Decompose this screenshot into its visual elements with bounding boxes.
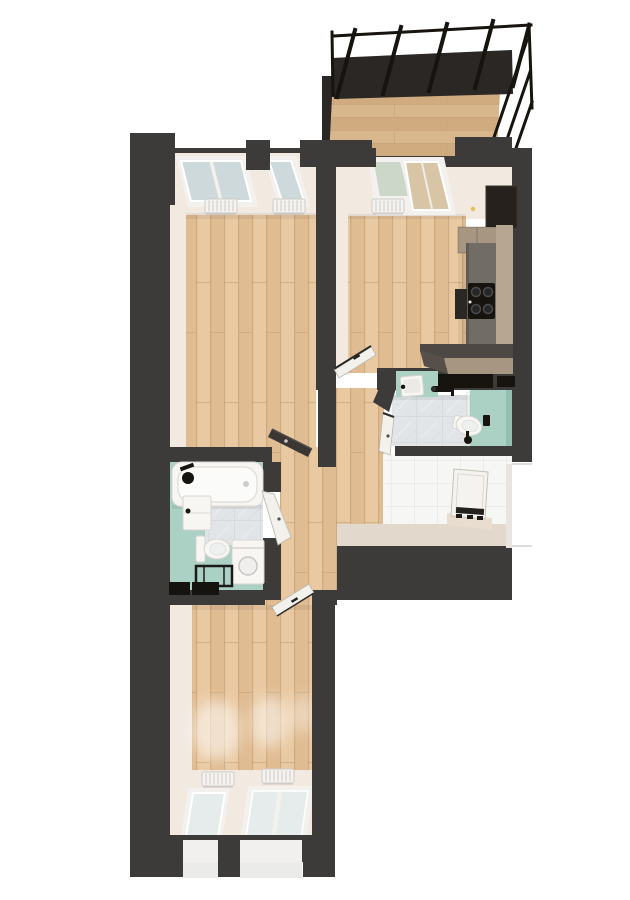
hallway-floor xyxy=(280,465,338,590)
basin-faucet-icon xyxy=(186,509,191,514)
bedroom-window-reveal-1 xyxy=(183,840,218,862)
hinge-icon xyxy=(477,516,483,520)
living-room-floor xyxy=(186,215,316,447)
bedroom-window-double xyxy=(240,786,314,843)
entry-south-wall-mass xyxy=(337,546,512,600)
kitchen-left-wall-face xyxy=(336,219,350,375)
floor-plan-render xyxy=(0,0,630,900)
hinge-icon xyxy=(456,514,462,518)
living-room-radiator-1 xyxy=(205,199,237,215)
bedroom-radiator-1 xyxy=(202,772,234,788)
bedroom-outer-sill-2 xyxy=(240,862,302,878)
bedroom-window-reveal-2 xyxy=(240,840,302,862)
door-handle-icon xyxy=(277,517,280,520)
basin-cabinet xyxy=(183,496,211,530)
tall-cabinet xyxy=(486,186,517,228)
window-mullion-pillar xyxy=(246,140,270,170)
bedroom-outer-sill-1 xyxy=(183,862,218,878)
bottom-center-pillar xyxy=(218,835,240,877)
bedroom-radiator-2 xyxy=(262,769,294,785)
switch-icon xyxy=(471,207,475,211)
bathroom-right-wall-upper xyxy=(263,462,281,492)
entrance-door xyxy=(447,469,492,530)
flush-plate-icon xyxy=(483,415,490,426)
right-exterior-wall xyxy=(512,148,532,373)
bath-mat-1 xyxy=(169,582,190,595)
shower-mixer-icon xyxy=(182,472,194,484)
oven-icon xyxy=(455,289,467,319)
hinge-icon xyxy=(467,515,473,519)
wc-black-shelf-short xyxy=(497,376,515,387)
wc-black-shelf-long xyxy=(438,374,493,388)
washing-machine xyxy=(232,540,264,584)
door-handle-icon xyxy=(284,439,288,443)
wc-basin xyxy=(400,375,424,397)
floor-plan-canvas xyxy=(0,0,630,900)
entrance-opening xyxy=(512,462,532,548)
living-room-radiator-2 xyxy=(273,199,305,215)
bedroom-right-wall xyxy=(312,600,335,862)
divider-wall-lower xyxy=(318,390,336,467)
living-room-south-wall xyxy=(160,447,272,462)
living-room-left-wall-face xyxy=(170,215,188,447)
top-right-pillar xyxy=(455,137,512,167)
base-cabinet-band xyxy=(496,225,513,360)
bedroom-window-single xyxy=(180,788,230,842)
pergola-shade-band xyxy=(331,50,513,99)
bottom-left-corner-pillar xyxy=(130,835,183,877)
top-left-corner-pillar xyxy=(130,133,175,205)
bath-mat-2 xyxy=(192,582,219,595)
wc-south-wall xyxy=(395,446,513,456)
cooktop-icon xyxy=(468,283,495,319)
entrance-jamb xyxy=(506,464,512,548)
bathroom-right-wall-lower xyxy=(263,538,281,600)
kitchen-top-wall xyxy=(336,148,376,167)
door-handle-icon xyxy=(386,434,389,437)
left-exterior-wall xyxy=(130,148,170,862)
kitchen-radiator xyxy=(372,199,404,215)
hallway-vestibule-floor xyxy=(336,388,384,524)
divider-wall xyxy=(316,158,336,390)
bottom-right-corner-pillar xyxy=(303,835,335,877)
